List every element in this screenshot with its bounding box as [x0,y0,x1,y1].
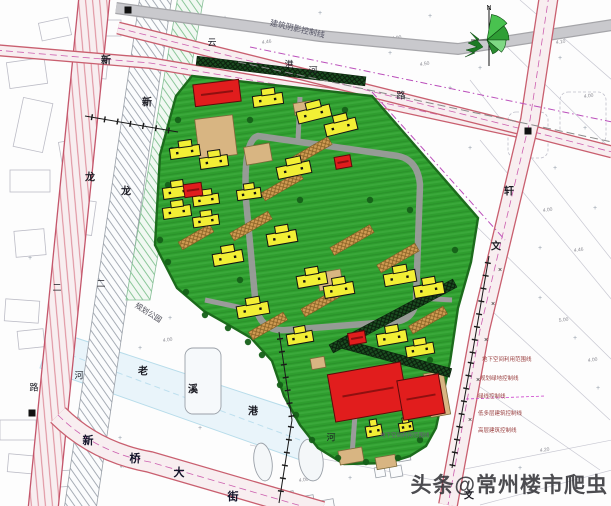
road-station-cross: × [484,337,488,344]
building-core [318,277,321,280]
map-label: 地下空间利用范围线 [380,431,430,439]
building-core [176,152,179,155]
map-label: 桥 [130,451,142,465]
survey-cross: + [583,125,587,132]
survey-cross: + [318,10,322,17]
tree [202,312,208,318]
building-step [261,87,275,95]
building-core [242,193,245,196]
survey-cross: + [198,425,202,432]
building-core [206,162,209,165]
building-core [169,212,172,215]
parcel-outline [6,57,47,88]
building-core [292,338,295,341]
map-label: 轩 [504,184,514,197]
building-core [273,238,276,241]
survey-cross: + [593,205,597,212]
parcel-outline [4,299,39,323]
map-label: 港 [284,58,293,69]
public-building [334,155,352,170]
building-core [435,287,438,290]
map-label: 路 [396,89,405,100]
building-core [300,167,303,170]
boundary-tick [474,326,480,327]
tree [293,412,299,418]
elevation-number: 4.00 [587,357,598,364]
survey-cross: + [596,385,600,392]
elevation-number: 4.10 [555,39,566,46]
building-core [284,170,287,173]
map-label: 规划公园 [133,300,164,324]
building-step [243,183,254,190]
boundary-tick [483,275,489,276]
building-core [330,290,333,293]
building-core [412,350,415,353]
map-label: 低多层建筑控制线 [478,409,523,417]
building-core [211,219,214,222]
boundary-tick [279,351,285,352]
boundary-tick [104,116,105,122]
tree [277,382,283,388]
map-label: 规划绿地控制线 [480,374,519,382]
survey-cross: + [138,345,142,352]
map-label: 河 [74,369,83,380]
tree [335,455,341,461]
survey-cross: + [388,50,392,57]
tree [407,207,413,213]
survey-cross: + [118,435,122,442]
boundary-tick [288,426,294,427]
map-label: 二 [52,282,61,292]
survey-marker [29,410,36,417]
boundary-tick [280,478,286,479]
tree [175,117,181,123]
survey-cross: + [573,335,577,342]
building-core [259,307,262,310]
tree [165,259,171,265]
parcel-outline [14,229,46,258]
building-core [402,426,405,429]
elevation-number: 4.00 [542,207,553,214]
map-label: 河 [308,64,317,75]
tree [367,197,373,203]
map-label: 龙 [84,170,95,183]
boundary-tick [287,403,293,404]
tree [157,237,163,243]
boundary-tick [478,301,484,302]
building-core [198,221,201,224]
survey-cross: + [538,245,542,252]
public-building [348,331,367,346]
road-station-cross: × [491,301,495,308]
tree [297,197,303,203]
public-building [397,374,445,421]
tree [395,455,401,461]
elevation-number: 4.46 [573,247,584,254]
tree [363,459,369,465]
river-parcel-outline [185,348,221,414]
map-label: 老 [137,364,148,377]
boundary-tick [281,364,287,365]
building-core [254,192,257,195]
building-core [420,290,423,293]
boundary-tick [476,314,482,315]
tree [225,325,231,331]
map-label: 高层建筑控制线 [478,426,517,434]
survey-marker [525,128,532,135]
boundary-tick [485,262,491,263]
map-label: 新 [83,433,94,447]
survey-cross: + [348,475,352,482]
building-core [219,160,222,163]
building-core [383,338,386,341]
building-core [211,198,214,201]
boundary-tick [117,119,118,125]
building-core [243,310,246,313]
boundary-tick [481,288,487,289]
map-label: 龙 [120,184,131,197]
building-core [191,150,194,153]
building-core [288,235,291,238]
map-label: 地下空间利用范围线 [482,355,532,363]
building-core [259,100,262,103]
map-label: 新 [101,53,111,66]
building-core [369,430,372,433]
building-step [369,419,377,427]
building-core [345,287,348,290]
tree [452,247,458,253]
survey-line [460,440,611,470]
north-arrow [465,6,509,66]
map-label: 港 [248,404,259,417]
map-label: 街 [227,489,239,503]
survey-cross: + [538,295,542,302]
building-step [170,200,183,208]
parcel-outline [17,329,45,350]
building-step [207,150,220,158]
map-label: 二 [96,278,105,288]
paved-court [310,356,326,369]
building-core [303,280,306,283]
parcel-outline [38,17,71,41]
survey-cross: + [28,255,32,262]
tree [237,277,243,283]
parcel-outline [13,97,53,152]
survey-cross: + [558,55,562,62]
building-core [274,98,277,101]
building-core [409,425,412,428]
elevation-number: 4.50 [419,61,430,68]
boundary-tick [285,390,291,391]
boundary-tick [286,439,292,440]
elevation-number: 4.00 [583,93,594,100]
tree [247,117,253,123]
building-core [425,347,428,350]
building-step [178,139,192,147]
road-station-cross: × [498,267,502,274]
tree [183,289,189,295]
map-label: 文 [491,239,502,252]
map-label: 绿线控制线 [478,392,506,400]
survey-cross: + [478,65,482,72]
building-core [377,429,380,432]
building-step [170,180,183,188]
building-core [182,210,185,213]
survey-cross: + [428,13,432,20]
map-label: 新 [142,95,152,108]
map-label: 大 [174,465,185,479]
map-label: 河 [326,431,335,442]
boundary-tick [470,352,476,353]
map-label: 云 [207,37,216,47]
boundary-tick [284,452,290,453]
building-step [413,337,426,346]
building-core [390,278,393,281]
boundary-tick [283,377,289,378]
road-station-cross: × [468,417,472,424]
map-label: 路 [29,381,38,392]
elevation-number: 5.00 [558,317,569,324]
parcel-outline [10,170,50,192]
boundary-tick [278,491,284,492]
survey-cross: + [553,165,557,172]
survey-cross: + [168,315,172,322]
public-building [183,182,203,197]
tree [259,352,265,358]
site-plan-image: ++++++++++++++++++++++++4.004.464.004.50… [0,0,611,506]
building-core [169,192,172,195]
building-core [234,255,237,258]
building-step [293,325,305,333]
parcel-outline [0,420,36,440]
building-step [200,210,212,218]
building-core [406,275,409,278]
elevation-number: 4.46 [261,39,272,46]
tree [342,107,348,113]
elevation-number: 4.00 [162,337,173,344]
building-core [305,335,308,338]
tree [309,437,315,443]
boundary-tick [282,465,288,466]
boundary-tick [472,339,478,340]
building-core [398,335,401,338]
survey-cross: + [468,145,472,152]
building-core [198,200,201,203]
tree [427,357,433,363]
survey-marker [125,7,132,14]
boundary-tick [277,338,283,339]
boundary-tick [288,416,294,417]
tree [245,339,251,345]
map-label: 溪 [188,382,199,395]
building-core [219,258,222,261]
site-plan-svg: ++++++++++++++++++++++++4.004.464.004.50… [0,0,611,506]
watermark: 头条@常州楼市爬虫 [411,469,608,499]
